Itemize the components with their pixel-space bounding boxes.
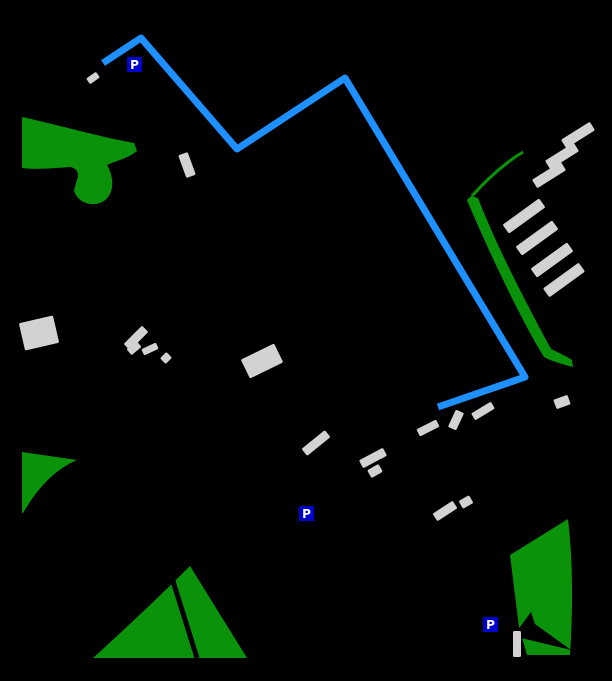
parking-icon[interactable]: P	[483, 617, 498, 632]
building	[302, 430, 331, 456]
route-layer	[103, 38, 525, 407]
park-upper-left	[22, 117, 137, 204]
tree-line-right	[472, 152, 523, 196]
building	[141, 342, 158, 355]
building	[503, 198, 546, 233]
building	[448, 409, 464, 430]
building	[19, 315, 59, 350]
building	[459, 495, 474, 509]
parking-icon-letter: P	[486, 618, 495, 632]
parking-icon[interactable]: P	[127, 57, 142, 72]
building	[432, 501, 457, 522]
building	[178, 152, 196, 178]
building	[516, 220, 559, 255]
building	[160, 352, 172, 364]
building	[416, 419, 439, 436]
parking-icon-letter: P	[302, 507, 311, 521]
building	[561, 122, 595, 148]
building	[367, 464, 383, 478]
building	[86, 72, 100, 85]
building	[553, 395, 571, 410]
building	[513, 631, 521, 657]
building	[359, 448, 387, 469]
parking-icon-letter: P	[130, 58, 139, 72]
map-canvas: PPP	[0, 0, 612, 681]
parking-icon[interactable]: P	[299, 506, 314, 521]
route-line[interactable]	[103, 38, 525, 407]
building	[241, 343, 283, 378]
park-triangle-left	[22, 452, 77, 513]
parking-layer: PPP	[127, 57, 498, 632]
map-container: PPP	[0, 0, 612, 681]
building	[471, 402, 495, 421]
